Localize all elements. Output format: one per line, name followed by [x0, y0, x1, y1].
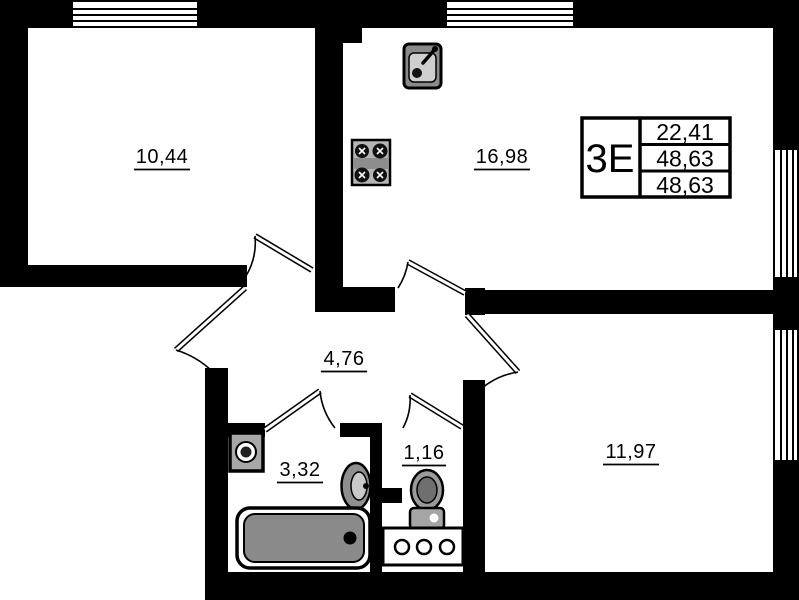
washing-machine-icon: [230, 433, 263, 471]
stove-icon: [352, 140, 390, 185]
unit-area-2: 48,63: [656, 146, 714, 172]
wall-kitchen-foot: [343, 287, 395, 312]
room-label-living: 10,44: [136, 146, 189, 168]
wc-cabinet-icon: [383, 528, 463, 565]
window-bedroom-right: [775, 330, 797, 460]
wall-kitchen-stub: [343, 28, 362, 43]
door-kitchen: [398, 262, 465, 293]
wall-right: [773, 0, 799, 600]
room-label-hall: 4,76: [324, 348, 365, 370]
floor-plan: 10,44 16,98 4,76 3,32 1,16 11,97 3E 22,4…: [0, 0, 799, 600]
window-kitchen-right: [775, 150, 797, 277]
room-label-wc: 1,16: [404, 442, 445, 464]
wall-bath-left: [205, 368, 228, 572]
bath-sink-icon: [342, 463, 371, 509]
unit-info-table: 3E 22,41 48,63 48,63: [582, 118, 730, 198]
wall-living-bottom: [0, 265, 247, 287]
unit-type-label: 3E: [586, 137, 635, 181]
wall-bottom: [205, 572, 799, 600]
door-entrance: [176, 288, 245, 372]
unit-area-1: 22,41: [656, 119, 714, 145]
door-living: [246, 236, 312, 276]
door-bathroom: [265, 391, 335, 430]
door-wc: [403, 395, 462, 428]
toilet-icon: [410, 470, 444, 529]
wall-wc-bedroom: [463, 380, 485, 575]
wall-kitchen-bedroom-divider: [465, 290, 773, 314]
walls: [0, 0, 799, 600]
wall-divider-end-block: [465, 288, 485, 315]
kitchen-sink-icon: [404, 44, 441, 88]
door-bedroom: [467, 315, 518, 388]
unit-area-3: 48,63: [656, 172, 714, 198]
room-label-bedroom: 11,97: [605, 441, 656, 463]
wall-wc-pilaster: [382, 488, 402, 503]
window-living-top: [73, 2, 197, 26]
wall-bath-wc-divider: [370, 423, 382, 572]
wall-living-kitchen-divider: [315, 0, 343, 312]
bathtub-icon: [237, 508, 370, 568]
room-label-kitchen-living: 16,98: [476, 146, 529, 168]
wall-left: [0, 0, 28, 287]
room-label-bathroom: 3,32: [280, 459, 321, 481]
window-kitchen-top: [447, 2, 573, 26]
